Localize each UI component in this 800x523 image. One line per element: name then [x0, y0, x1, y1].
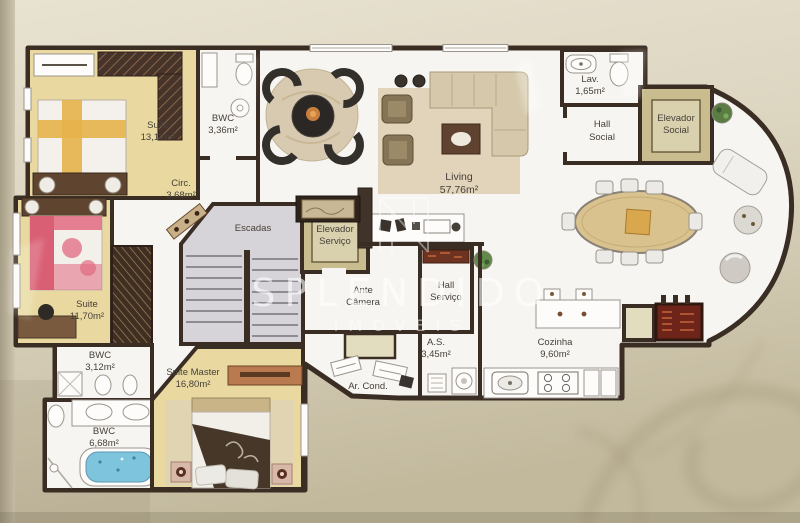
hall-social-label-2: Social: [589, 132, 615, 143]
coffee-table-icon: [442, 124, 480, 154]
as-label: A.S.: [427, 337, 445, 348]
watermark-subtitle: IMÓVEIS: [334, 316, 471, 335]
bwc-2-label: BWC: [89, 350, 111, 361]
shower-head-icon: [50, 464, 58, 472]
hall-social-label-1: Hall: [594, 119, 610, 130]
kitchen-counter-icon: [484, 368, 618, 398]
escadas-label: Escadas: [235, 223, 272, 234]
floor-plan-photo: Suite 13,14m² BWC 3,36m² Circ. 3,68m²: [0, 0, 800, 523]
double-bed-icon: [192, 398, 270, 489]
sink-icon: [566, 55, 596, 73]
room-suite-1: Suite 13,14m²: [24, 48, 198, 198]
suite-1-label: Suite: [147, 120, 169, 131]
ar-cond-label: Ar. Cond.: [348, 381, 388, 392]
room-bwc-2: BWC 3,12m²: [55, 345, 152, 400]
living-label: Living: [445, 171, 473, 183]
window-icon: [24, 138, 31, 162]
bottom-vignette: [0, 512, 800, 523]
tv-console-icon: [228, 366, 302, 385]
floor-plan-canvas: Suite 13,14m² BWC 3,36m² Circ. 3,68m²: [0, 0, 800, 523]
armchair-icon: [382, 95, 412, 123]
cozinha-label: Cozinha: [538, 337, 574, 348]
washer-icon: [452, 368, 476, 394]
vent-icon: [673, 295, 678, 304]
dining-table-icon: [575, 191, 699, 253]
bathtub-icon: [80, 448, 158, 486]
side-table-icon: [734, 206, 762, 234]
bidet-icon: [123, 375, 137, 395]
suite-2-area: 11,70m²: [70, 311, 104, 322]
nightstand-icon: [171, 462, 191, 482]
armchair-icon: [383, 135, 413, 165]
double-bed-icon: [33, 100, 127, 195]
vent-icon: [661, 295, 666, 304]
nightstand-icon: [272, 464, 292, 484]
barbecue-grill-icon: [656, 304, 702, 340]
closet-floor: [345, 334, 395, 358]
bwc-3-label: BWC: [93, 426, 115, 437]
plant-detail: [716, 107, 721, 112]
window-icon: [310, 45, 392, 52]
suite-master-area: 16,80m²: [176, 379, 211, 390]
stair-divider-wall: [244, 250, 250, 346]
window-icon: [24, 88, 31, 110]
watermark-brand: SPLENDIDO: [251, 271, 552, 315]
toilet-icon: [48, 405, 64, 427]
sideboard-icon: [372, 214, 464, 242]
elevador-social-label-2: Social: [663, 125, 689, 136]
circ-area: 3,68m²: [166, 190, 196, 201]
cozinha-area: 9,60m²: [540, 349, 570, 360]
room-suite-master: Suite Master 16,80m²: [152, 347, 308, 489]
window-icon: [301, 404, 308, 456]
elevador-servico-label-2: Serviço: [319, 236, 351, 247]
suite-master-label: Suite Master: [166, 367, 219, 378]
door-gap: [210, 154, 236, 162]
circ-label: Circ.: [171, 178, 191, 189]
plant-icon: [474, 251, 492, 269]
decor-icon: [395, 75, 407, 87]
suite-1-area: 13,14m²: [141, 132, 176, 143]
suite-2-label: Suite: [76, 299, 98, 310]
lav-label: Lav.: [581, 74, 598, 85]
centerpiece-icon: [625, 209, 651, 235]
vent-icon: [685, 295, 690, 304]
framed-picture-icon: [296, 196, 360, 222]
bwc-3-area: 6,68m²: [89, 438, 119, 449]
pouf-icon: [720, 253, 750, 283]
room-elevador-social: Elevador Social: [640, 87, 712, 163]
plant-detail: [723, 113, 728, 118]
sink-icon: [86, 404, 112, 420]
living-area: 57,76m²: [440, 184, 479, 196]
bwc-1-label: BWC: [212, 113, 234, 124]
room-bwc-3: BWC 6,68m²: [45, 400, 160, 490]
chair-icon: [38, 304, 54, 320]
bwc-2-area: 3,12m²: [85, 362, 115, 373]
grill-closet-floor: [624, 306, 654, 340]
toilet-icon: [95, 375, 111, 395]
as-area: 3,45m²: [421, 349, 451, 360]
decor-icon: [413, 75, 425, 87]
sink-icon: [123, 404, 149, 420]
plant-icon: [712, 103, 732, 123]
wardrobe-icon: [98, 52, 182, 76]
bwc-1-area: 3,36m²: [208, 125, 238, 136]
elevador-servico-label-1: Elevador: [316, 224, 354, 235]
lav-area: 1,65m²: [575, 86, 605, 97]
elevador-social-label-1: Elevador: [657, 113, 695, 124]
cabinet-icon: [202, 53, 217, 87]
window-icon: [443, 45, 508, 52]
door-gap: [562, 118, 569, 152]
